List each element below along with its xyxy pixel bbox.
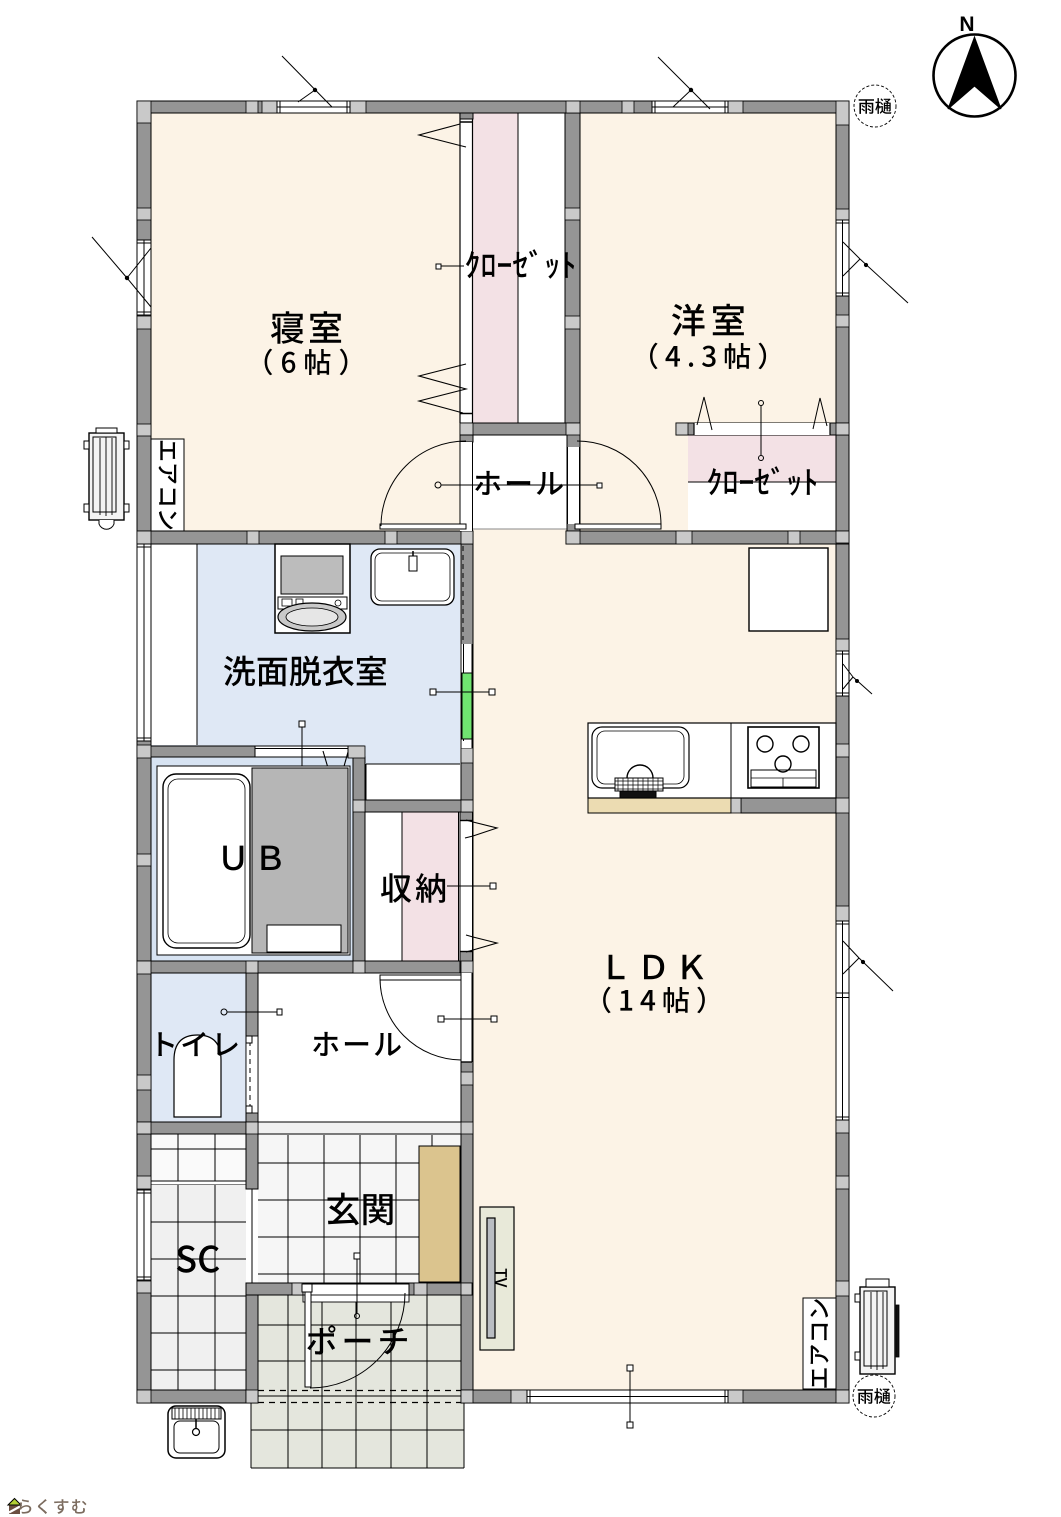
svg-text:N: N [959, 13, 974, 36]
